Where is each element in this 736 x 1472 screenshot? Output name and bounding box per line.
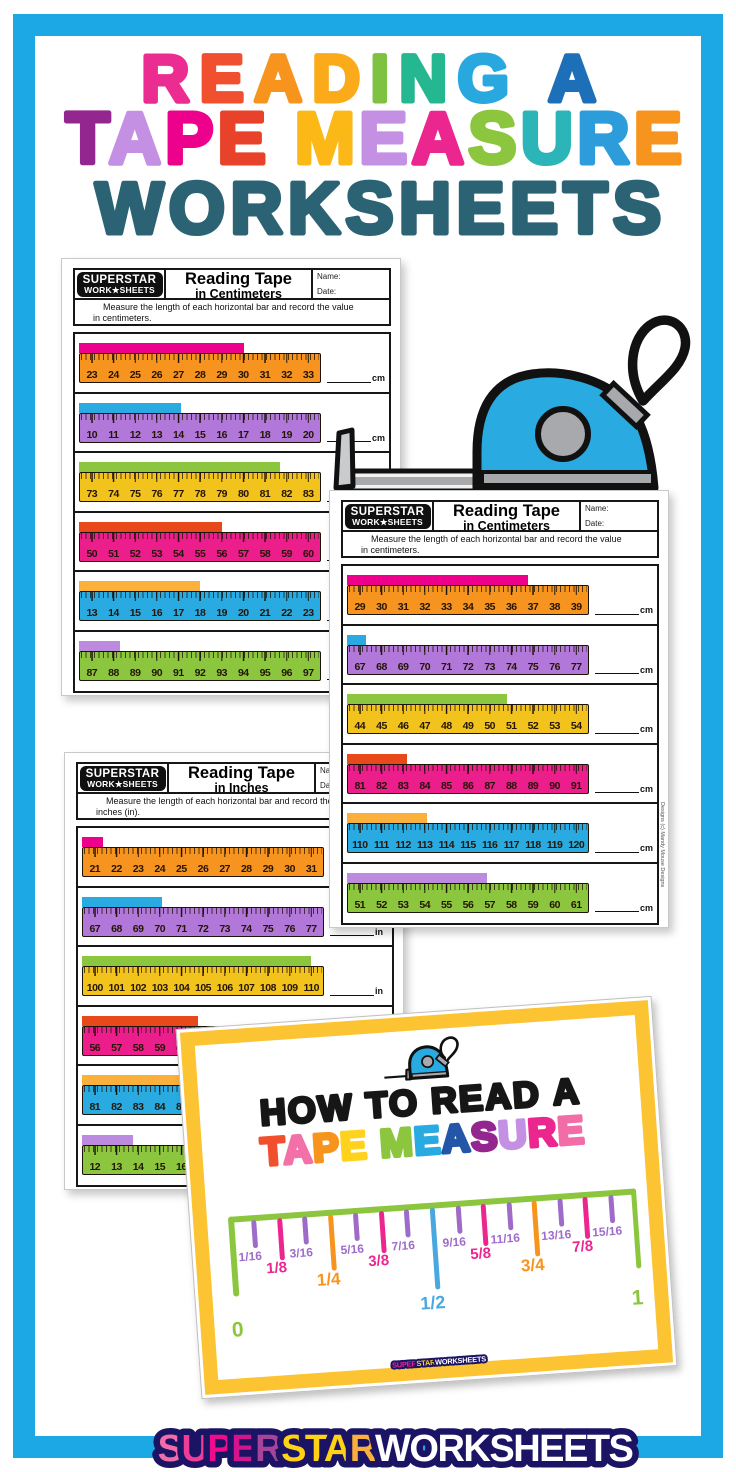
svg-text:SUPERSTARWORKSHEETS: SUPERSTARWORKSHEETS bbox=[158, 1428, 633, 1470]
svg-text:WORKSHEETS: WORKSHEETS bbox=[95, 169, 666, 249]
svg-text:TAPE MEASURE: TAPE MEASURE bbox=[66, 99, 687, 179]
